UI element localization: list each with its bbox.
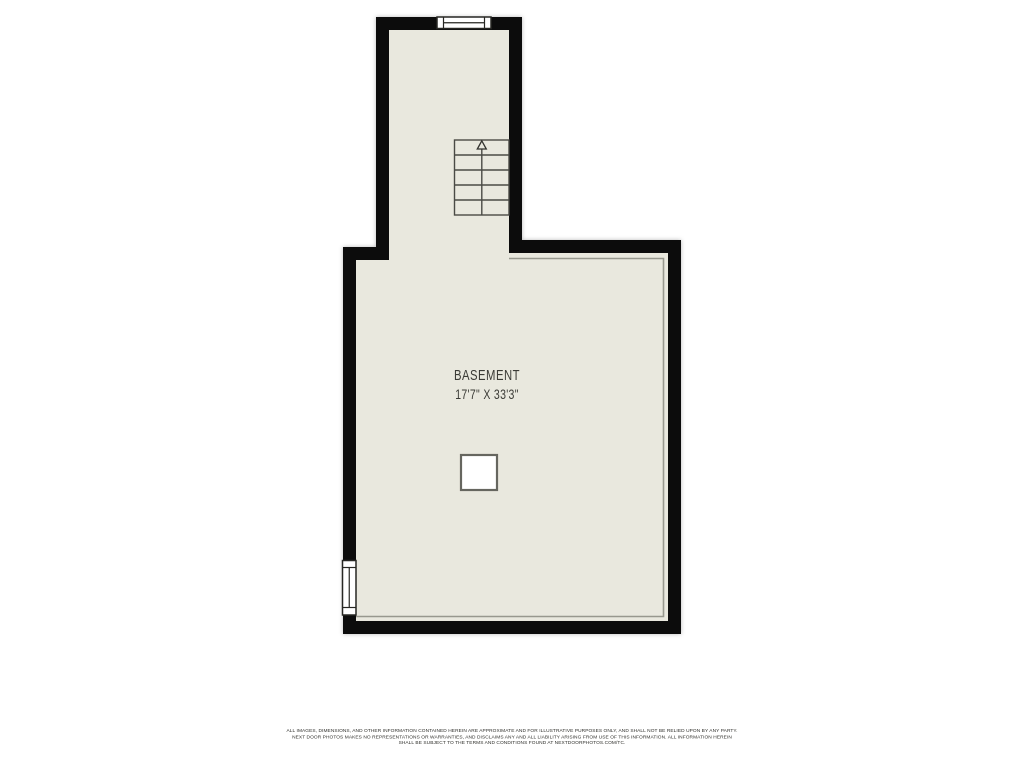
disclaimer: ALL IMAGES, DIMENSIONS, AND OTHER INFORM…	[256, 729, 768, 747]
floor-plan-page: BASEMENT 17'7" X 33'3" ALL IMAGES, DIMEN…	[0, 0, 1024, 768]
room-dimensions: 17'7" X 33'3"	[401, 387, 573, 402]
disclaimer-line: SHALL BE SUBJECT TO THE TERMS AND CONDIT…	[256, 741, 768, 747]
room-name: BASEMENT	[401, 368, 573, 384]
support-post	[461, 455, 497, 490]
room-label: BASEMENT 17'7" X 33'3"	[401, 368, 573, 402]
window-left-icon	[343, 561, 357, 616]
disclaimer-line: ALL IMAGES, DIMENSIONS, AND OTHER INFORM…	[256, 729, 768, 735]
window-top-icon	[437, 17, 491, 29]
